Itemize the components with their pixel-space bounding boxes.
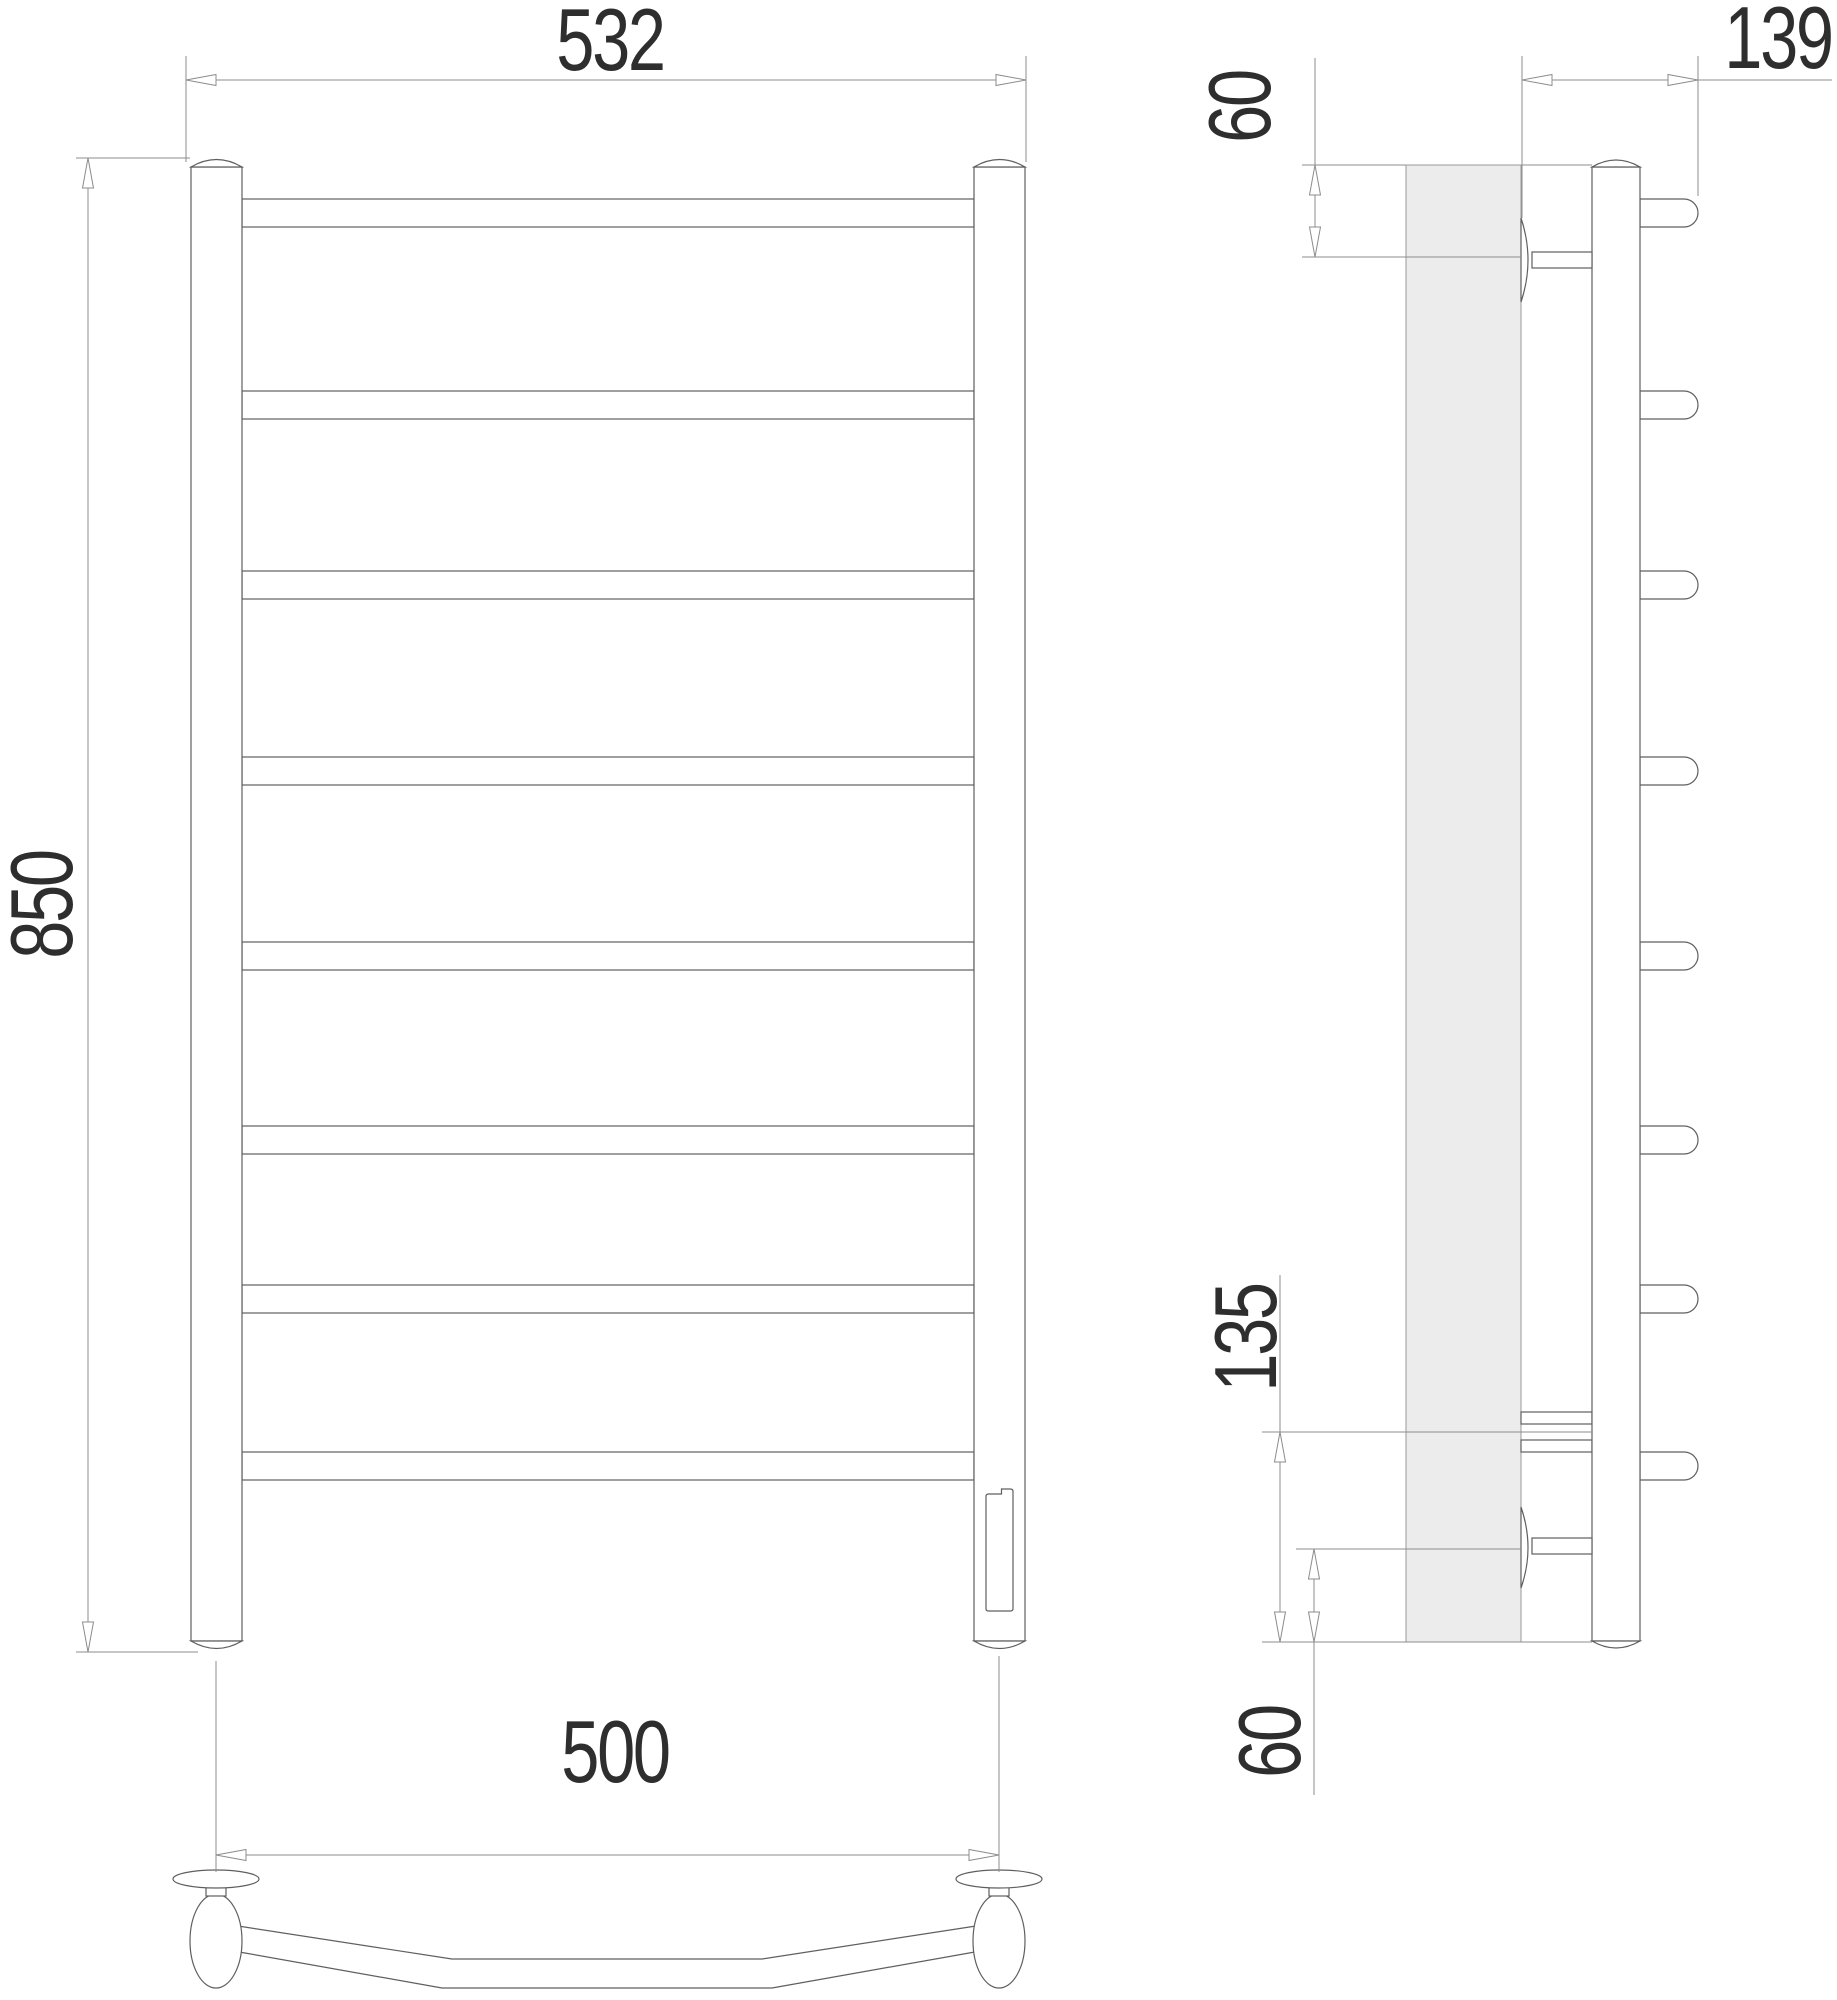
arrow-up-icon	[1310, 165, 1321, 195]
rung	[242, 199, 974, 227]
bottom-view	[173, 1870, 1042, 1988]
arrow-left-icon	[1522, 75, 1552, 86]
left-post	[191, 160, 242, 1649]
technical-drawing-page: 532 850 500 139 60 135 60	[0, 0, 1837, 2000]
rung	[242, 571, 974, 599]
drawing-canvas	[0, 0, 1837, 2000]
rung-ends	[1640, 199, 1698, 1480]
dim-label-bottom-offset: 60	[1226, 1706, 1314, 1778]
arrow-right-icon	[1668, 75, 1698, 86]
arrow-up-icon	[83, 158, 94, 188]
dim-label-mounting-width: 500	[561, 1708, 669, 1796]
right-wall-flange	[956, 1870, 1042, 1888]
dim-label-top-offset: 60	[1196, 71, 1284, 143]
left-wall-flange	[173, 1870, 259, 1888]
arrow-left-icon	[186, 75, 216, 86]
dim-overall-height	[76, 158, 198, 1652]
side-post	[1592, 160, 1640, 1648]
arrow-down-icon	[1275, 1612, 1286, 1642]
arrow-right-icon	[996, 75, 1026, 86]
rung	[242, 391, 974, 419]
arrow-down-icon	[83, 1622, 94, 1652]
dim-label-overall-width: 532	[556, 0, 664, 84]
left-elbow-joint	[190, 1894, 242, 1988]
right-post	[974, 160, 1025, 1649]
top-mounting-bracket	[1521, 218, 1592, 302]
arrow-left-icon	[216, 1850, 246, 1861]
arrow-up-icon	[1309, 1549, 1320, 1579]
rung	[242, 1452, 974, 1480]
arrow-down-icon	[1309, 1612, 1320, 1642]
arrow-up-icon	[1275, 1432, 1286, 1462]
dim-label-bottom-span: 135	[1202, 1284, 1290, 1392]
side-view	[1406, 160, 1698, 1648]
wall-strip	[1406, 165, 1521, 1642]
arrow-right-icon	[969, 1850, 999, 1861]
rear-connector-bar	[1521, 1440, 1592, 1452]
dim-label-depth: 139	[1724, 0, 1832, 82]
front-view	[191, 160, 1025, 1649]
right-elbow-joint	[973, 1894, 1025, 1988]
rung	[242, 942, 974, 970]
rung	[242, 1126, 974, 1154]
dim-label-overall-height: 850	[0, 851, 86, 959]
bowed-rung-tube	[228, 1926, 986, 1988]
rung	[242, 757, 974, 785]
rung	[242, 1285, 974, 1313]
arrow-down-icon	[1310, 227, 1321, 257]
bottom-mounting-bracket	[1521, 1507, 1592, 1588]
rear-connector-bar	[1521, 1412, 1592, 1424]
